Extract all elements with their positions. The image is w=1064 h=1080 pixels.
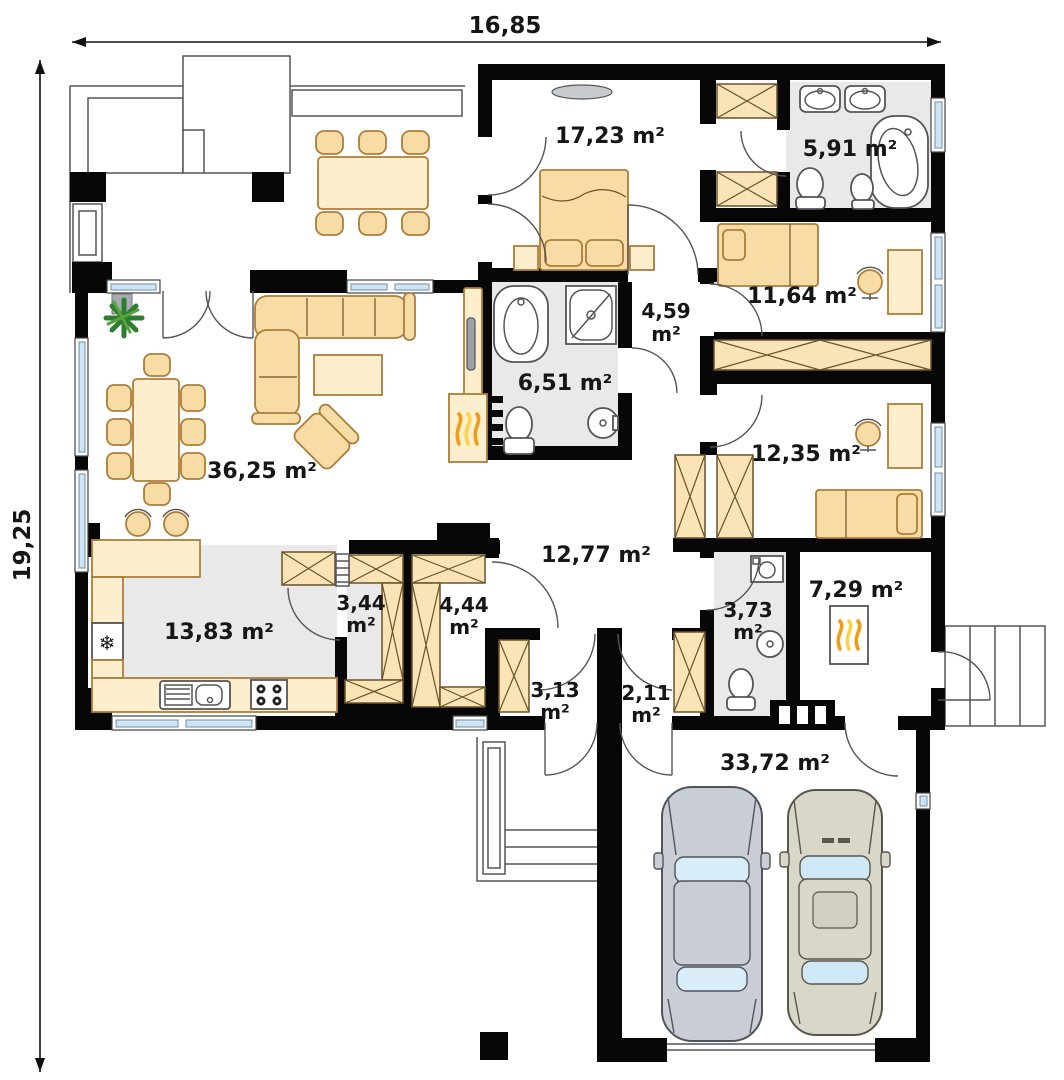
room-label-bedroom-1: 17,23 m² [555, 124, 665, 149]
stove-icon [251, 680, 287, 709]
door-vestibule-porch [545, 723, 597, 775]
window-left-1 [75, 338, 88, 456]
kitchen-counter-left [92, 577, 123, 623]
bidet-icon [851, 174, 874, 209]
kitchen-sink [160, 681, 230, 709]
window-bedroom-2 [931, 233, 945, 332]
kitchen-stools [125, 509, 189, 536]
fridge-glyph: ❄ [99, 631, 116, 655]
closet-bedroom-3 [717, 455, 753, 538]
room-label-vestibule-unit: m² [540, 700, 570, 724]
room-label-vestibule-value: 3,13 [530, 678, 579, 702]
room-label-living-room: 36,25 m² [207, 459, 317, 484]
room-label-garage: 33,72 m² [720, 751, 830, 776]
floor-plan-page: ❄ [0, 0, 1064, 1080]
dimension-width-label: 16,85 [469, 13, 542, 39]
window-kitchen [112, 716, 256, 730]
closet-corridor-top [717, 84, 777, 118]
single-bed-3 [816, 490, 922, 538]
terrace-bench [292, 90, 462, 116]
room-label-hall-central: 12,77 m² [541, 543, 651, 568]
attic-ladder [336, 554, 349, 586]
dining-table-set [107, 354, 205, 505]
radiator-icon [552, 85, 612, 99]
arrow-down-icon [35, 1058, 45, 1072]
room-label-entry-value: 2,11 [621, 681, 670, 705]
arrow-right-icon [927, 37, 941, 47]
desk-chair-2 [857, 267, 883, 300]
room-label-bathroom-main: 6,51 m² [518, 371, 613, 396]
room-label-hall-bedrooms-unit: m² [651, 322, 681, 346]
arrow-up-icon [35, 60, 45, 74]
sink-icon-main [588, 408, 618, 438]
toilet-icon-wc [727, 669, 755, 710]
door-pivot-dot [778, 199, 789, 210]
room-label-hall-bedrooms-value: 4,59 [641, 299, 690, 323]
closet-between-bedrooms [714, 340, 931, 370]
door-garage-boiler [845, 723, 898, 776]
closet-hall-column [675, 455, 705, 538]
furnace-icon [830, 606, 868, 664]
room-label-utility-wc-value: 3,73 [723, 598, 772, 622]
bedroom-1-furniture [514, 85, 654, 270]
closet-room-bottom [440, 687, 485, 707]
shower-icon [566, 286, 616, 344]
boiler-room-fixtures [830, 606, 868, 664]
bedroom-3-furniture [816, 404, 922, 538]
door-bathroom-ensuite [741, 131, 786, 176]
window-left-2 [75, 470, 88, 572]
closet-room-tall [412, 583, 440, 707]
side-steps [945, 626, 1045, 726]
coffee-table [314, 355, 382, 395]
door-bedroom-1-terrace-a [488, 137, 546, 195]
cars [654, 787, 890, 1041]
terrace-dining-set [316, 131, 429, 235]
room-label-closet-room-value: 4,44 [439, 593, 488, 617]
entry-porch [477, 737, 597, 881]
toilet-icon-ensuite [796, 168, 825, 209]
bathtub-icon [494, 286, 548, 362]
room-label-pantry-value: 3,44 [336, 591, 385, 615]
closet-vestibule [499, 640, 529, 712]
window-closet-room [453, 716, 487, 730]
porch-steps [505, 830, 597, 864]
desk-2 [888, 250, 922, 314]
nightstand-right [630, 246, 654, 270]
closet-corridor-bottom [717, 172, 777, 206]
terrace-pillar-left [70, 172, 106, 202]
fireplace [449, 394, 487, 462]
terrace-table [318, 157, 428, 209]
door-bathroom-main [632, 348, 677, 393]
room-label-bedroom-2: 11,64 m² [747, 284, 857, 309]
dimension-height-label: 19,25 [10, 509, 36, 582]
arrow-left-icon [72, 37, 86, 47]
porch-planter [483, 742, 505, 874]
yard-post [480, 1032, 508, 1060]
nightstand-left [514, 246, 538, 270]
room-label-pantry-unit: m² [346, 613, 376, 637]
room-label-entry-unit: m² [631, 703, 661, 727]
window-bathroom-ensuite [931, 98, 945, 152]
room-label-utility-wc-unit: m² [733, 620, 763, 644]
cabinet-kitchen [282, 552, 335, 585]
vent-wall [770, 700, 835, 730]
window-living-2 [347, 280, 433, 293]
double-bed [540, 170, 628, 270]
terrace-awning-outline [88, 98, 183, 173]
terrace-pillar-mid [252, 172, 284, 202]
cabinet-pantry-top [349, 555, 403, 583]
door-bedroom-3 [710, 395, 762, 447]
terrace-railing [73, 204, 102, 262]
room-label-bedroom-3: 12,35 m² [751, 442, 861, 467]
window-living-1 [107, 280, 160, 293]
door-closet-room [492, 562, 558, 628]
closet-entry [674, 632, 705, 712]
kitchen-counter-left-2 [92, 660, 123, 678]
single-bed-2 [718, 224, 818, 286]
french-door-terrace [163, 291, 253, 338]
garage-door [667, 1044, 875, 1050]
window-bedroom-3 [931, 423, 945, 516]
door-entry-outside [620, 723, 672, 775]
tv-cabinet [464, 288, 482, 396]
closet-room-top [412, 555, 485, 583]
corner-bathtub-icon [871, 116, 928, 208]
kitchen-peninsula [92, 540, 200, 577]
floor-plan-drawing: ❄ [0, 0, 1064, 1080]
room-label-boiler-room: 7,29 m² [809, 578, 904, 603]
window-garage [916, 793, 930, 809]
car-2 [780, 790, 890, 1035]
desk-3 [888, 404, 922, 468]
room-label-closet-room-unit: m² [449, 615, 479, 639]
plant-icon [106, 294, 142, 336]
cabinet-pantry-bottom [345, 680, 403, 703]
fridge-icon: ❄ [92, 623, 123, 660]
toilet-icon-main [504, 407, 534, 454]
room-label-bathroom-ensuite: 5,91 m² [803, 137, 898, 162]
room-label-kitchen: 13,83 m² [164, 620, 274, 645]
chimney-block [183, 56, 290, 173]
car-1 [654, 787, 770, 1041]
dining-table [133, 379, 179, 481]
